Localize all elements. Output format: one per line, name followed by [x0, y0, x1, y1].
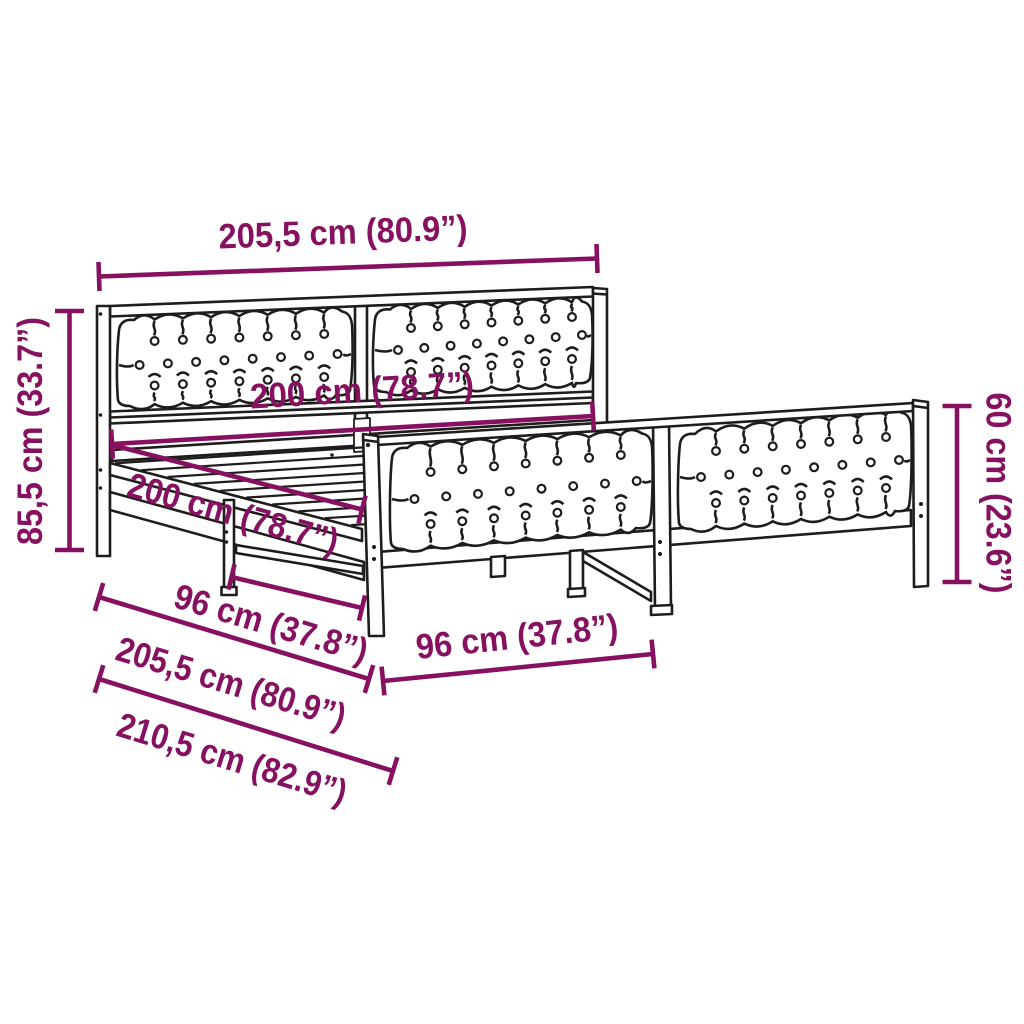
svg-text:60 cm (23.6”): 60 cm (23.6”) — [979, 393, 1018, 594]
svg-text:85,5 cm (33.7”): 85,5 cm (33.7”) — [11, 317, 50, 545]
